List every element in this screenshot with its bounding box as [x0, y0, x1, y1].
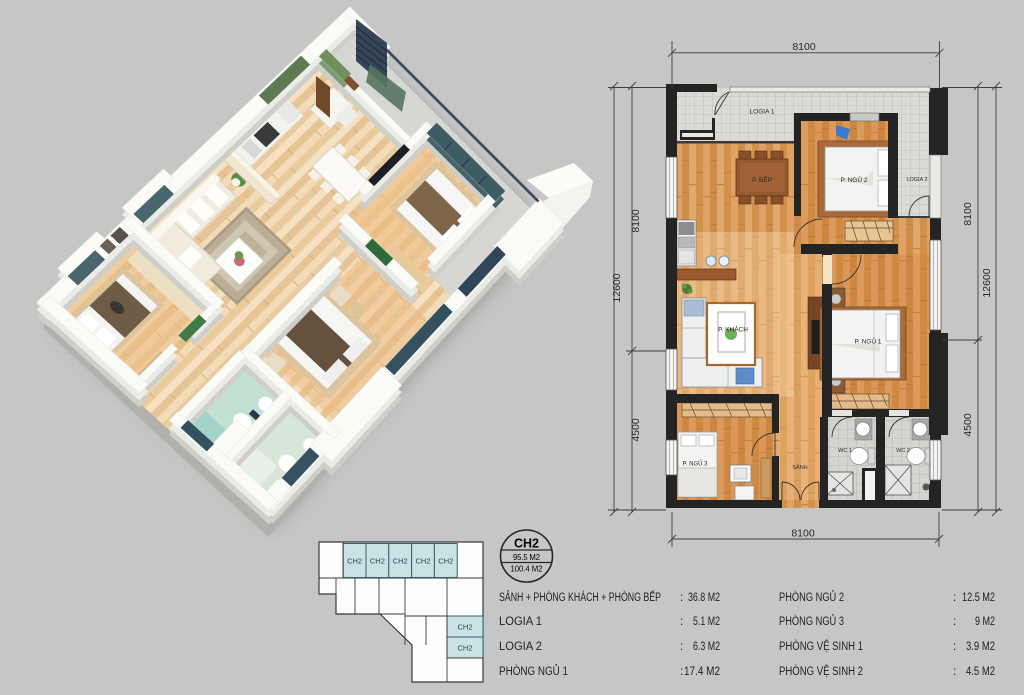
svg-text:CH2: CH2 [457, 623, 472, 632]
svg-text:LOGIA 1: LOGIA 1 [750, 109, 775, 116]
svg-text:8100: 8100 [962, 202, 974, 226]
svg-text::: : [680, 616, 683, 628]
svg-text:36.8 M2: 36.8 M2 [688, 592, 720, 604]
svg-text::: : [953, 592, 956, 604]
svg-text:4500: 4500 [962, 413, 974, 437]
svg-text:4500: 4500 [630, 418, 642, 442]
svg-text::: : [953, 641, 956, 653]
svg-text:4.5 M2: 4.5 M2 [966, 666, 995, 678]
svg-text::: : [953, 666, 956, 678]
svg-text:8100: 8100 [792, 41, 816, 53]
svg-text:8100: 8100 [791, 528, 815, 540]
svg-text:P. KHÁCH: P. KHÁCH [718, 325, 748, 334]
svg-text:12.5 M2: 12.5 M2 [962, 592, 995, 604]
svg-text:LOGIA 1: LOGIA 1 [499, 616, 542, 628]
svg-text:3.9 M2: 3.9 M2 [966, 641, 995, 653]
svg-text:8100: 8100 [630, 209, 642, 233]
svg-text:WC 2: WC 2 [896, 448, 910, 454]
svg-text:6.3 M2: 6.3 M2 [693, 641, 720, 653]
svg-text:17.4 M2: 17.4 M2 [684, 666, 720, 678]
svg-text:PHÒNG VỆ SINH 1: PHÒNG VỆ SINH 1 [779, 640, 863, 653]
svg-text:P. NGỦ 2: P. NGỦ 2 [841, 175, 868, 184]
svg-text:PHÒNG VỆ SINH 2: PHÒNG VỆ SINH 2 [779, 665, 863, 678]
svg-text:PHÒNG NGỦ 3: PHÒNG NGỦ 3 [779, 615, 844, 628]
svg-text:SẢNH: SẢNH [792, 464, 807, 471]
svg-text:9 M2: 9 M2 [975, 616, 995, 628]
svg-text:P. NGỦ 3: P. NGỦ 3 [683, 461, 709, 468]
svg-text:100.4 M2: 100.4 M2 [511, 565, 543, 574]
svg-text:WC 1: WC 1 [838, 448, 852, 454]
svg-text:LOGIA 2: LOGIA 2 [499, 641, 542, 653]
svg-text:SẢNH + PHÒNG KHÁCH + PHÒNG BẾP: SẢNH + PHÒNG KHÁCH + PHÒNG BẾP [499, 591, 661, 604]
svg-text:P. NGỦ 1: P. NGỦ 1 [855, 337, 882, 346]
svg-text:PHÒNG NGỦ 2: PHÒNG NGỦ 2 [779, 591, 844, 604]
svg-text::: : [953, 616, 956, 628]
svg-text:CH2: CH2 [457, 644, 472, 653]
svg-text::: : [680, 666, 683, 678]
svg-text:PHÒNG NGỦ 1: PHÒNG NGỦ 1 [499, 665, 568, 678]
svg-text::: : [680, 592, 683, 604]
svg-text:12600: 12600 [981, 268, 993, 297]
svg-text:LOGIA 2: LOGIA 2 [906, 177, 927, 183]
svg-text:5.1 M2: 5.1 M2 [693, 616, 720, 628]
svg-text::: : [680, 641, 683, 653]
